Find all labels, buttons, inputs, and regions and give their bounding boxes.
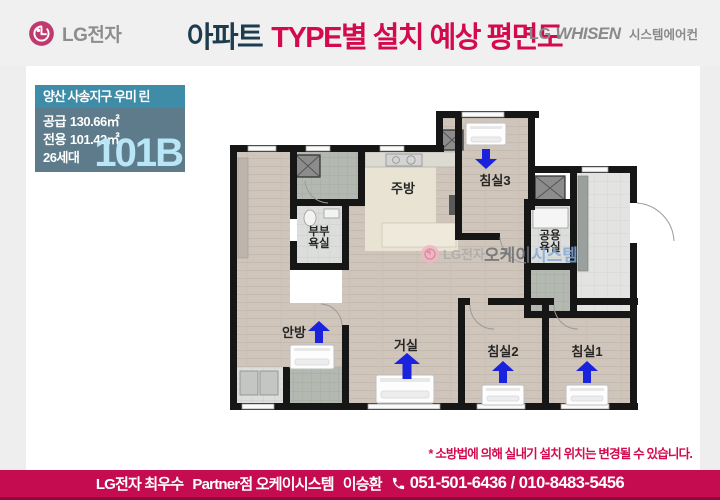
disclaimer-note: * 소방법에 의해 실내기 설치 위치는 변경될 수 있습니다. <box>428 443 692 462</box>
floor-plan: 주방 침실3 부부욕실 공용욕실 안방 거실 침실2 침실1 LG전자 오케이 … <box>230 103 700 415</box>
footer-bar: LG전자 최우수 Partner점 오케이시스템 이승환 051-501-643… <box>0 470 720 500</box>
kitchen-island <box>382 223 456 247</box>
footer-brand: LG전자 최우수 <box>96 473 184 494</box>
room-label-master-bedroom: 안방 <box>282 325 306 340</box>
supply-label: 공급 <box>43 114 66 129</box>
content-card: 양산 사송지구 우미 린 공급130.66㎡ 전용101.42㎡ 26세대 10… <box>26 66 700 470</box>
footer-phone: 051-501-6436 / 010-8483-5456 <box>391 474 624 493</box>
supply-area-row: 공급130.66㎡ <box>43 113 177 131</box>
footer-phone-numbers: 051-501-6436 / 010-8483-5456 <box>410 474 624 493</box>
room-label-master-bath: 부부욕실 <box>308 225 330 250</box>
room-label-kitchen: 주방 <box>391 181 415 196</box>
room-label-bedroom3: 침실3 <box>479 173 510 188</box>
page-header: LG전자 아파트TYPE별 설치 예상 평면도 LG WHISEN 시스템에어컨 <box>0 0 720 66</box>
unit-info-body: 공급130.66㎡ 전용101.42㎡ 26세대 101B <box>35 108 185 172</box>
bathtub <box>533 208 568 228</box>
title-part2: TYPE별 설치 예상 평면도 <box>271 22 562 54</box>
whisen-wordmark: WHISEN <box>556 24 621 43</box>
shaft-icon <box>535 176 565 200</box>
ac-unit-bedroom3 <box>466 123 506 145</box>
whisen-suffix: 시스템에어컨 <box>629 28 698 42</box>
type-code-badge: 101B <box>94 133 182 173</box>
supply-value: 130.66㎡ <box>70 114 119 129</box>
ac-unit-living <box>376 375 434 403</box>
lg-symbol-icon <box>28 20 55 47</box>
washer <box>260 371 278 395</box>
ac-unit-master-bedroom <box>290 345 334 369</box>
room-label-bedroom1: 침실1 <box>571 344 602 359</box>
footer-partner: Partner점 오케이시스템 <box>192 473 333 494</box>
exclusive-label: 전용 <box>43 132 66 147</box>
basin <box>324 209 339 218</box>
watermark-word2: 시스템 <box>531 246 578 265</box>
shaft-icon <box>296 155 320 177</box>
footer-name: 이승환 <box>343 473 382 494</box>
toilet <box>304 210 316 226</box>
shoe-closet <box>578 176 588 271</box>
complex-name: 양산 사송지구 우미 린 <box>35 85 185 108</box>
title-part1: 아파트 <box>187 22 263 54</box>
household-label: 26세대 <box>43 150 79 165</box>
room-label-living: 거실 <box>394 338 418 353</box>
page-title: 아파트TYPE별 설치 예상 평면도 <box>187 14 562 56</box>
ac-unit-bedroom1 <box>566 385 608 405</box>
phone-icon <box>391 476 406 491</box>
ac-unit-bedroom2 <box>482 385 524 405</box>
wardrobe <box>238 158 248 258</box>
lg-logo: LG전자 <box>28 20 121 47</box>
whisen-lg-text: LG <box>529 26 551 43</box>
powder-floor <box>290 367 342 403</box>
watermark-brand: LG전자 <box>443 247 485 262</box>
watermark-word1: 오케이 <box>484 246 531 265</box>
whisen-logo: LG WHISEN 시스템에어컨 <box>529 24 698 44</box>
room-label-bedroom2: 침실2 <box>487 344 518 359</box>
lg-logo-text: LG전자 <box>62 20 121 47</box>
unit-info-box: 양산 사송지구 우미 린 공급130.66㎡ 전용101.42㎡ 26세대 10… <box>35 85 185 172</box>
washer <box>240 371 258 395</box>
kitchen-sink <box>386 154 422 166</box>
